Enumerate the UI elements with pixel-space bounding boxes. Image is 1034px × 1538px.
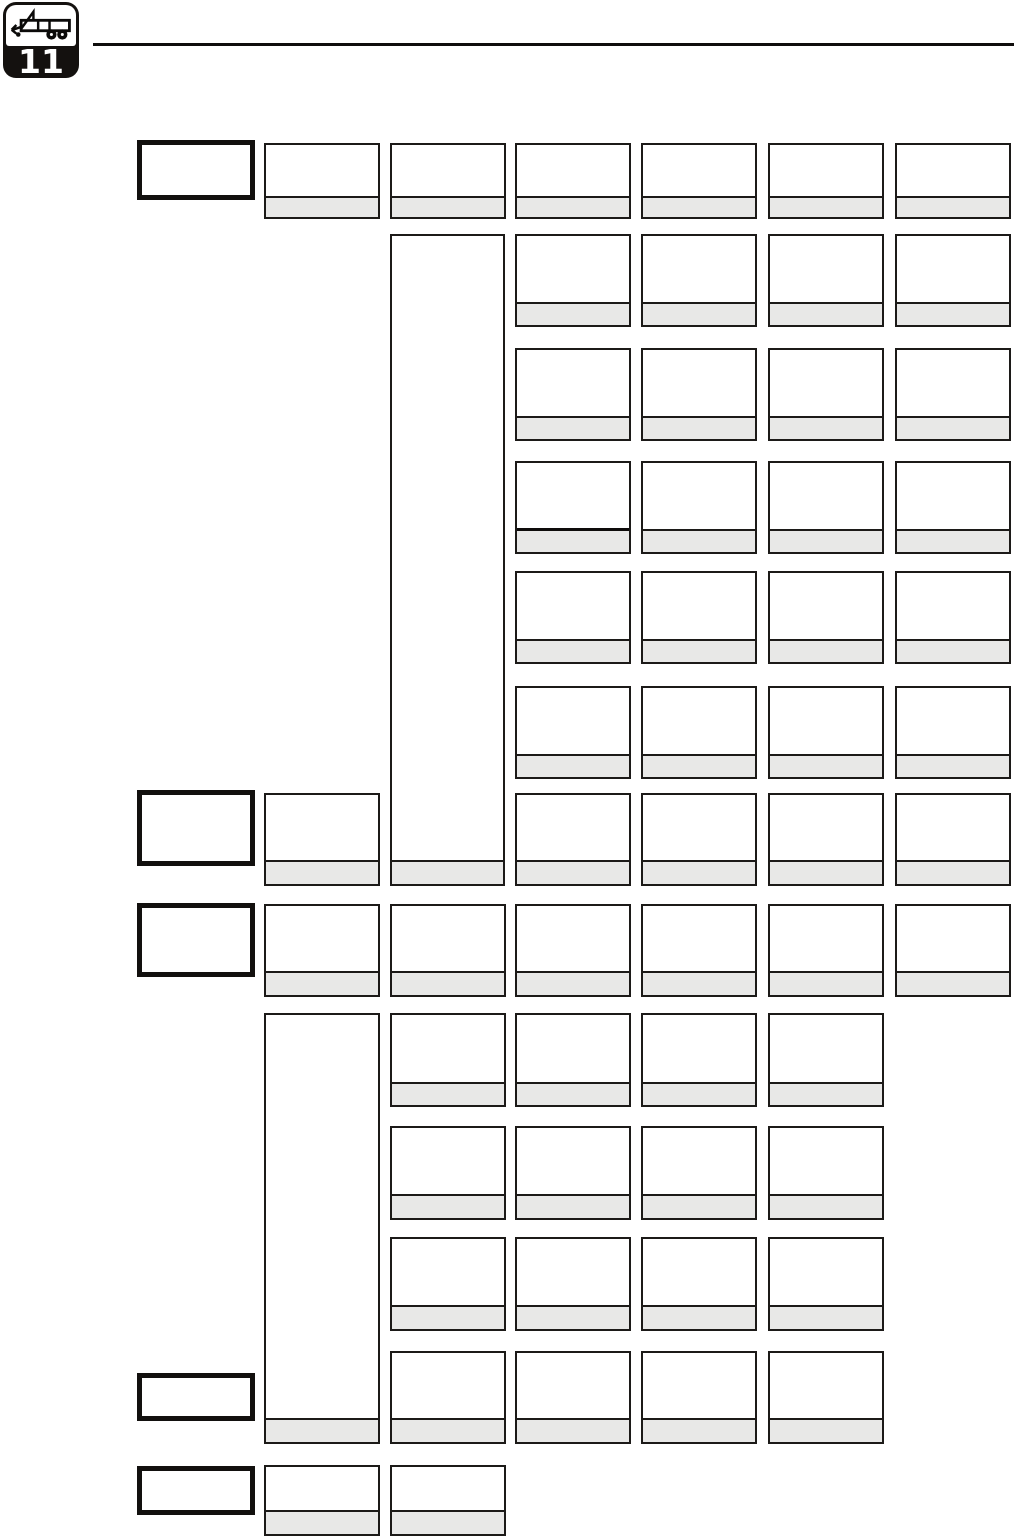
photo-area xyxy=(517,1128,629,1194)
photo-area xyxy=(643,1015,755,1082)
photo-area xyxy=(643,463,755,529)
photo-area xyxy=(266,795,378,860)
photo-area xyxy=(643,795,755,860)
photo-placeholder-box xyxy=(768,348,884,441)
photo-area xyxy=(392,236,503,860)
caption-strip xyxy=(643,302,755,325)
caption-strip xyxy=(266,971,378,995)
caption-strip xyxy=(266,1418,378,1442)
caption-strip xyxy=(392,1418,504,1442)
caption-strip xyxy=(897,302,1009,325)
photo-area xyxy=(643,145,755,196)
photo-placeholder-box xyxy=(390,1465,506,1536)
photo-placeholder-box xyxy=(895,143,1011,219)
diagram-grid xyxy=(0,0,1034,1538)
caption-strip xyxy=(266,860,378,884)
photo-area xyxy=(392,1015,504,1082)
caption-strip xyxy=(897,860,1009,884)
photo-placeholder-box xyxy=(641,348,757,441)
photo-area xyxy=(517,688,629,754)
photo-placeholder-box xyxy=(390,904,506,997)
caption-strip xyxy=(897,416,1009,439)
caption-strip xyxy=(517,754,629,777)
photo-area xyxy=(643,1353,755,1418)
photo-placeholder-box xyxy=(895,686,1011,779)
caption-strip xyxy=(897,639,1009,662)
caption-strip xyxy=(392,1305,504,1329)
photo-area xyxy=(517,573,629,639)
photo-area xyxy=(392,145,504,196)
heading-box xyxy=(137,1373,255,1421)
caption-strip xyxy=(392,196,504,217)
photo-placeholder-box xyxy=(768,686,884,779)
photo-area xyxy=(770,1015,882,1082)
caption-strip xyxy=(643,971,755,995)
photo-area xyxy=(392,906,504,971)
caption-strip xyxy=(643,529,755,552)
photo-placeholder-box xyxy=(895,348,1011,441)
photo-placeholder-box xyxy=(264,904,380,997)
photo-placeholder-box xyxy=(515,461,631,554)
photo-area xyxy=(770,350,882,416)
photo-placeholder-box xyxy=(768,1237,884,1331)
photo-placeholder-box xyxy=(641,571,757,664)
photo-area xyxy=(643,688,755,754)
photo-area xyxy=(392,1239,504,1305)
caption-strip xyxy=(770,416,882,439)
photo-placeholder-box xyxy=(641,686,757,779)
photo-area xyxy=(266,145,378,196)
caption-strip xyxy=(392,1194,504,1218)
caption-strip xyxy=(517,860,629,884)
photo-area xyxy=(517,463,629,528)
heading-box xyxy=(137,140,255,200)
photo-area xyxy=(897,145,1009,196)
photo-placeholder-box xyxy=(515,793,631,886)
photo-placeholder-box xyxy=(768,234,884,327)
photo-placeholder-box xyxy=(768,461,884,554)
caption-strip xyxy=(770,1418,882,1442)
photo-placeholder-box xyxy=(641,793,757,886)
caption-strip xyxy=(392,1510,504,1534)
photo-placeholder-box xyxy=(895,461,1011,554)
photo-placeholder-box xyxy=(768,793,884,886)
heading-box xyxy=(137,1466,255,1515)
caption-strip xyxy=(517,302,629,325)
photo-placeholder-box xyxy=(390,234,505,886)
caption-strip xyxy=(517,971,629,995)
photo-placeholder-box xyxy=(768,1351,884,1444)
caption-strip xyxy=(517,416,629,439)
caption-strip xyxy=(897,529,1009,552)
caption-strip xyxy=(517,639,629,662)
photo-area xyxy=(392,1467,504,1510)
photo-area xyxy=(897,906,1009,971)
photo-area xyxy=(517,350,629,416)
caption-strip xyxy=(266,196,378,217)
photo-placeholder-box xyxy=(515,571,631,664)
caption-strip xyxy=(643,1418,755,1442)
photo-placeholder-box xyxy=(515,1013,631,1107)
caption-strip xyxy=(266,1510,378,1534)
photo-placeholder-box xyxy=(390,1351,506,1444)
photo-area xyxy=(770,906,882,971)
photo-placeholder-box xyxy=(515,904,631,997)
caption-strip xyxy=(643,754,755,777)
photo-placeholder-box xyxy=(515,348,631,441)
photo-placeholder-box xyxy=(515,686,631,779)
photo-placeholder-box xyxy=(264,1465,380,1536)
photo-area xyxy=(897,573,1009,639)
photo-area xyxy=(517,795,629,860)
photo-placeholder-box xyxy=(768,571,884,664)
photo-area xyxy=(643,573,755,639)
caption-strip xyxy=(392,971,504,995)
caption-strip xyxy=(643,1082,755,1105)
photo-placeholder-box xyxy=(264,793,380,886)
photo-placeholder-box xyxy=(768,904,884,997)
photo-placeholder-box xyxy=(641,234,757,327)
photo-area xyxy=(517,906,629,971)
photo-area xyxy=(643,1128,755,1194)
photo-area xyxy=(770,145,882,196)
photo-placeholder-box xyxy=(768,143,884,219)
photo-area xyxy=(897,463,1009,529)
photo-area xyxy=(392,1128,504,1194)
caption-strip xyxy=(770,639,882,662)
caption-strip xyxy=(643,860,755,884)
photo-area xyxy=(266,1015,378,1418)
photo-area xyxy=(266,906,378,971)
photo-area xyxy=(897,350,1009,416)
caption-strip xyxy=(770,1305,882,1329)
caption-strip xyxy=(770,754,882,777)
photo-area xyxy=(643,350,755,416)
photo-placeholder-box xyxy=(895,904,1011,997)
photo-area xyxy=(517,1239,629,1305)
photo-area xyxy=(897,795,1009,860)
caption-strip xyxy=(897,754,1009,777)
caption-strip xyxy=(770,529,882,552)
photo-placeholder-box xyxy=(641,904,757,997)
photo-area xyxy=(392,1353,504,1418)
caption-strip xyxy=(643,1305,755,1329)
photo-placeholder-box xyxy=(641,1237,757,1331)
photo-placeholder-box xyxy=(390,1013,506,1107)
photo-placeholder-box xyxy=(390,143,506,219)
photo-area xyxy=(517,145,629,196)
photo-area xyxy=(266,1467,378,1510)
photo-placeholder-box xyxy=(641,143,757,219)
photo-placeholder-box xyxy=(515,1351,631,1444)
photo-area xyxy=(897,688,1009,754)
photo-area xyxy=(770,1353,882,1418)
caption-strip xyxy=(770,971,882,995)
photo-placeholder-box xyxy=(895,793,1011,886)
caption-strip xyxy=(392,860,503,884)
caption-strip xyxy=(517,1082,629,1105)
photo-area xyxy=(770,1128,882,1194)
photo-placeholder-box xyxy=(768,1126,884,1220)
photo-area xyxy=(770,236,882,302)
photo-placeholder-box xyxy=(895,234,1011,327)
photo-area xyxy=(770,463,882,529)
caption-strip xyxy=(517,196,629,217)
photo-placeholder-box xyxy=(641,1126,757,1220)
photo-area xyxy=(517,1353,629,1418)
caption-strip xyxy=(643,1194,755,1218)
photo-placeholder-box xyxy=(264,143,380,219)
photo-area xyxy=(517,1015,629,1082)
caption-strip xyxy=(770,302,882,325)
photo-placeholder-box xyxy=(390,1237,506,1331)
caption-strip xyxy=(770,860,882,884)
caption-strip xyxy=(770,196,882,217)
photo-placeholder-box xyxy=(515,234,631,327)
caption-strip xyxy=(643,196,755,217)
caption-strip xyxy=(517,1418,629,1442)
caption-strip xyxy=(517,1305,629,1329)
photo-placeholder-box xyxy=(264,1013,380,1444)
caption-strip xyxy=(897,971,1009,995)
caption-strip xyxy=(643,639,755,662)
caption-strip xyxy=(770,1194,882,1218)
photo-area xyxy=(770,573,882,639)
photo-area xyxy=(770,795,882,860)
photo-placeholder-box xyxy=(641,1351,757,1444)
heading-box xyxy=(137,903,255,977)
photo-area xyxy=(643,906,755,971)
caption-strip xyxy=(643,416,755,439)
photo-placeholder-box xyxy=(515,1126,631,1220)
caption-strip xyxy=(517,1194,629,1218)
caption-strip xyxy=(770,1082,882,1105)
photo-area xyxy=(770,1239,882,1305)
caption-strip xyxy=(392,1082,504,1105)
caption-strip xyxy=(897,196,1009,217)
photo-placeholder-box xyxy=(768,1013,884,1107)
photo-placeholder-box xyxy=(390,1126,506,1220)
caption-strip xyxy=(517,528,629,552)
manual-page: 11 xyxy=(0,0,1034,1538)
photo-area xyxy=(517,236,629,302)
photo-placeholder-box xyxy=(515,1237,631,1331)
photo-placeholder-box xyxy=(641,1013,757,1107)
photo-placeholder-box xyxy=(515,143,631,219)
photo-area xyxy=(643,236,755,302)
photo-area xyxy=(770,688,882,754)
photo-placeholder-box xyxy=(641,461,757,554)
photo-area xyxy=(897,236,1009,302)
photo-area xyxy=(643,1239,755,1305)
photo-placeholder-box xyxy=(895,571,1011,664)
heading-box xyxy=(137,790,255,866)
